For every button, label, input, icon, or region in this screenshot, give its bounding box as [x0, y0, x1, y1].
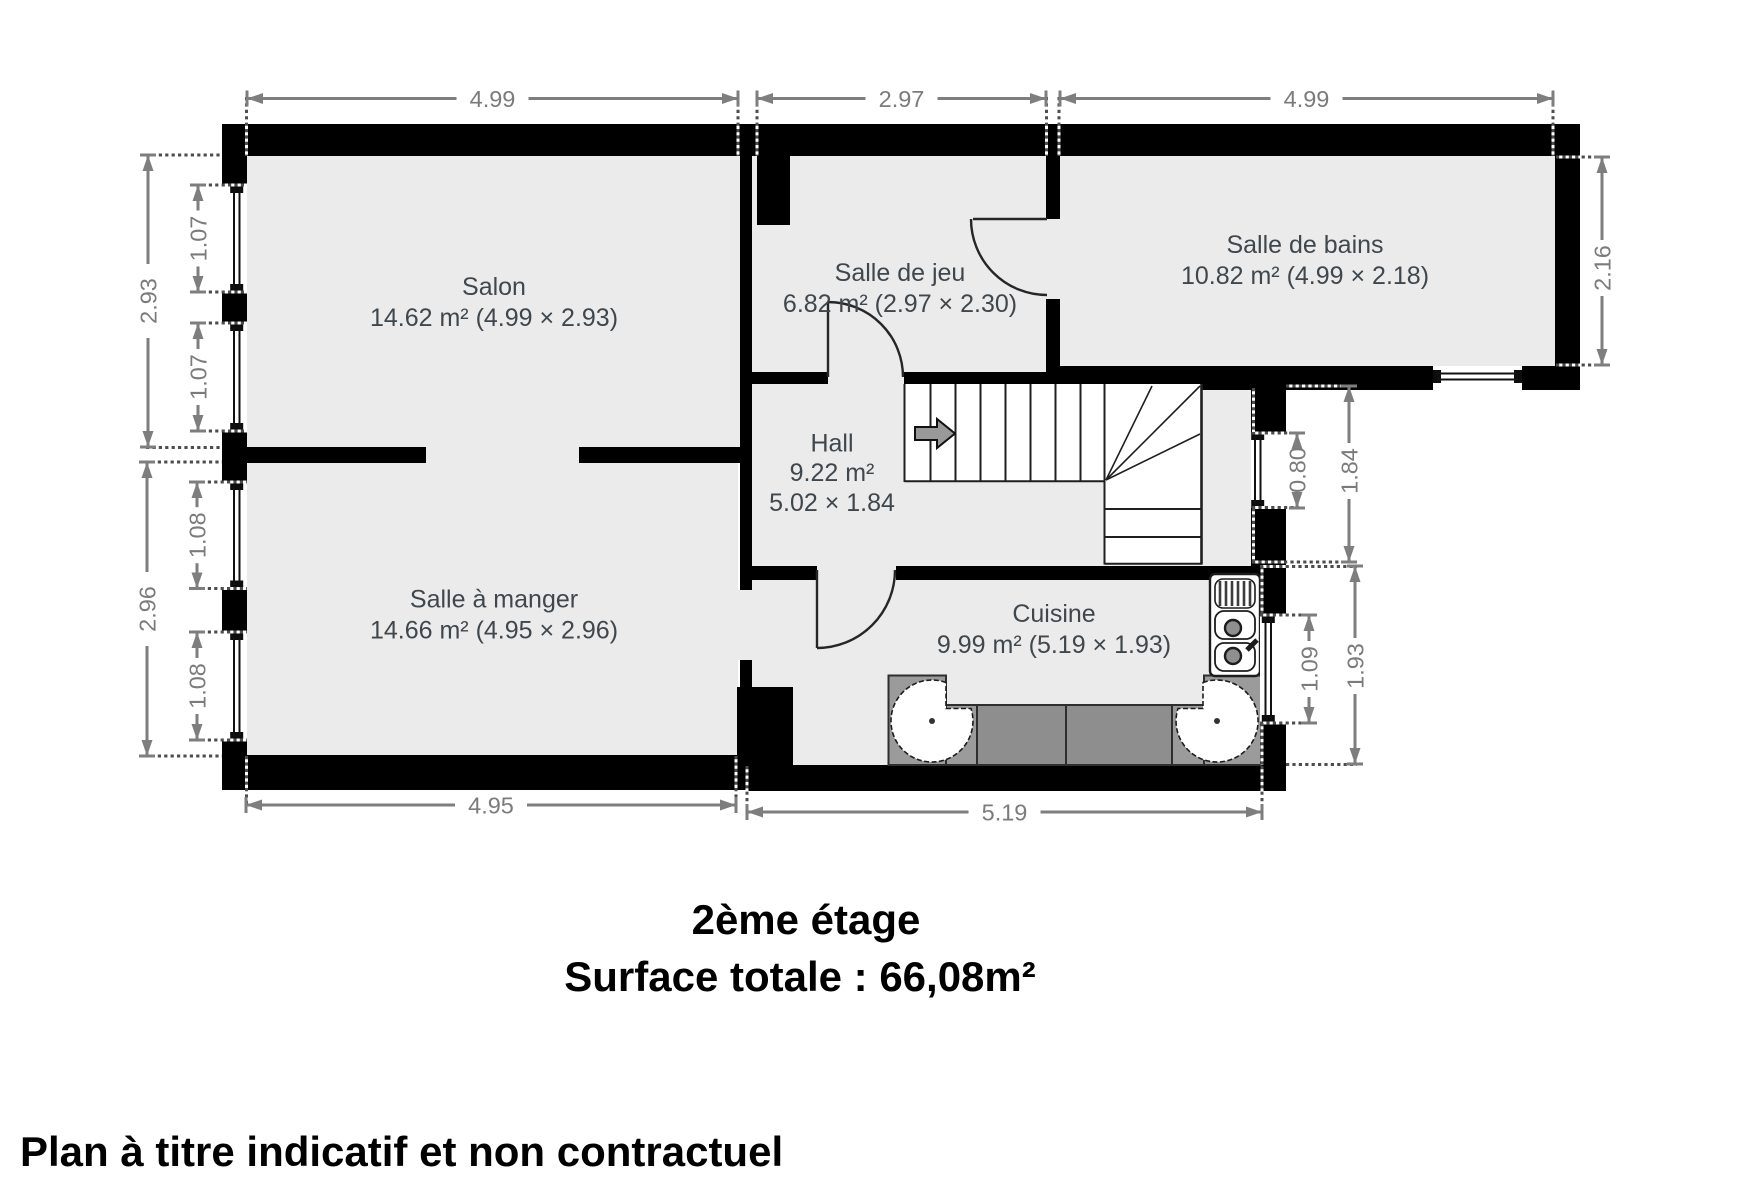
svg-text:2.93: 2.93	[136, 278, 162, 324]
svg-text:4.99: 4.99	[470, 86, 516, 112]
svg-text:2.96: 2.96	[135, 586, 161, 632]
svg-text:Salle à manger: Salle à manger	[410, 586, 578, 614]
svg-text:4.95: 4.95	[468, 793, 514, 819]
svg-text:Salle de bains: Salle de bains	[1226, 231, 1383, 259]
svg-text:4.99: 4.99	[1284, 86, 1330, 112]
svg-text:2.16: 2.16	[1590, 245, 1616, 291]
svg-text:5.19: 5.19	[982, 800, 1028, 826]
svg-text:1.08: 1.08	[185, 512, 211, 558]
svg-text:Plan à titre indicatif et non: Plan à titre indicatif et non contractue…	[20, 1128, 783, 1175]
svg-text:1.93: 1.93	[1343, 643, 1369, 689]
svg-text:1.07: 1.07	[186, 216, 212, 262]
svg-text:0.80: 0.80	[1285, 447, 1311, 493]
svg-text:Hall: Hall	[810, 430, 853, 458]
svg-text:2.97: 2.97	[879, 86, 925, 112]
svg-text:14.66 m² (4.95 × 2.96): 14.66 m² (4.95 × 2.96)	[370, 617, 618, 645]
svg-text:1.08: 1.08	[185, 663, 211, 709]
svg-text:1.84: 1.84	[1337, 448, 1363, 494]
svg-text:Salle de jeu: Salle de jeu	[835, 259, 966, 287]
svg-text:Cuisine: Cuisine	[1012, 600, 1095, 628]
svg-text:10.82 m² (4.99 × 2.18): 10.82 m² (4.99 × 2.18)	[1181, 262, 1429, 290]
svg-text:2ème étage: 2ème étage	[692, 896, 921, 943]
svg-text:14.62 m² (4.99 × 2.93): 14.62 m² (4.99 × 2.93)	[370, 304, 618, 332]
svg-text:6.82 m² (2.97 × 2.30): 6.82 m² (2.97 × 2.30)	[783, 290, 1017, 318]
svg-text:5.02 × 1.84: 5.02 × 1.84	[769, 489, 895, 517]
svg-text:1.07: 1.07	[186, 354, 212, 400]
svg-text:9.99 m² (5.19 × 1.93): 9.99 m² (5.19 × 1.93)	[937, 631, 1171, 659]
svg-text:9.22 m²: 9.22 m²	[790, 459, 875, 487]
svg-text:Salon: Salon	[462, 273, 526, 301]
svg-text:Surface totale : 66,08m²: Surface totale : 66,08m²	[564, 953, 1036, 1000]
svg-text:1.09: 1.09	[1297, 646, 1323, 692]
